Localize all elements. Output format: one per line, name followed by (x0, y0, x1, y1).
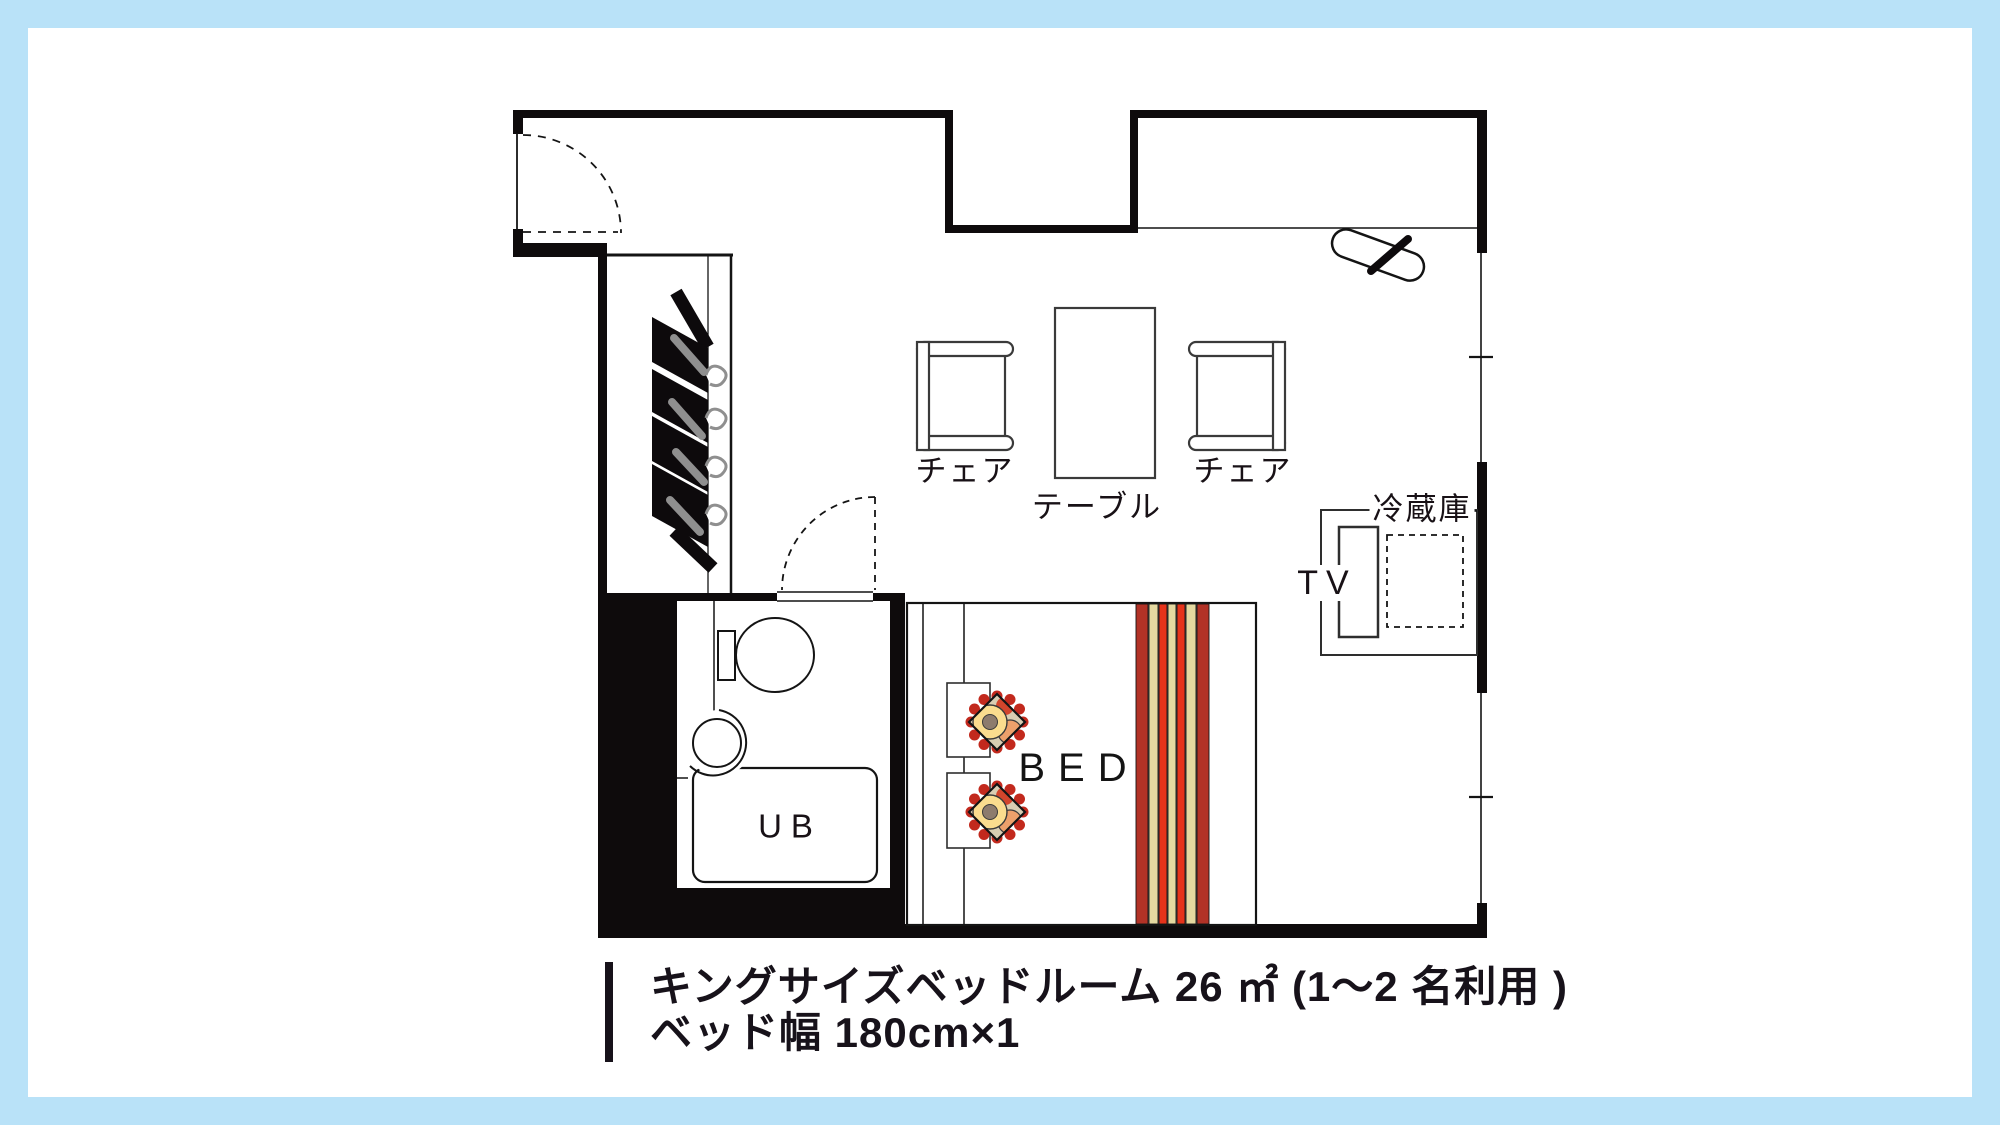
chair-left-back (917, 342, 929, 450)
right-wall-middle (1477, 462, 1487, 693)
hanger-hooks (706, 366, 726, 524)
chair-right-armrest-bottom (1189, 436, 1285, 450)
hanger-hook-icon (706, 505, 726, 524)
chair-left-seat (927, 355, 1005, 437)
bathtub-label: UB (758, 810, 822, 843)
caption: キングサイズベッドルーム 26 ㎡ (1〜2 名利用 ) ベッド幅 180cm×… (650, 964, 1568, 1056)
entry-bottom-wall (513, 243, 607, 257)
fridge-label: 冷蔵庫 (1370, 493, 1475, 526)
left-wall-upper-nub (513, 110, 523, 134)
luggage-rack-frame (1328, 225, 1428, 284)
hanger-hook-icon (706, 409, 726, 428)
chair-left-armrest-top (917, 342, 1013, 356)
hanger-hook-icon (706, 457, 726, 476)
table-label: テーブル (1032, 492, 1162, 523)
right-wall-upper (1477, 110, 1487, 253)
bed-runner (1136, 604, 1209, 924)
bed-runner-stripe (1177, 604, 1185, 924)
top-wall-right (1138, 110, 1487, 118)
notch-right-wall (1130, 110, 1138, 233)
chair-left-label: チェア (916, 456, 1015, 487)
chair-right-label: チェア (1194, 456, 1293, 487)
caption-line-1: キングサイズベッドルーム 26 ㎡ (1〜2 名利用 ) (650, 964, 1568, 1010)
toilet-tank (718, 631, 735, 680)
screenshot-root: { "page": { "background": "#b9e2f8", "ca… (0, 0, 2000, 1125)
cushion-core (983, 805, 998, 820)
bed-runner-stripe (1149, 604, 1158, 924)
chair-right (1189, 342, 1285, 450)
bed-runner-stripe (1159, 604, 1167, 924)
luggage-rack (1328, 225, 1428, 284)
bed-label: BED (1018, 748, 1139, 788)
fridge-outline (1387, 535, 1463, 627)
notch-left-wall (945, 110, 953, 233)
bed-runner-stripe (1186, 604, 1196, 924)
toilet-bowl (736, 618, 814, 692)
chair-right-armrest-top (1189, 342, 1285, 356)
caption-line-2: ベッド幅 180cm×1 (650, 1010, 1568, 1056)
entry-door-swing (523, 135, 621, 233)
chair-left-armrest-bottom (917, 436, 1013, 450)
caption-bar (605, 962, 613, 1062)
tv-label: TV (1294, 565, 1359, 601)
floor-plan-svg (0, 0, 2000, 1125)
bathroom-door-swing (782, 497, 875, 590)
bathroom-door-opening (777, 588, 873, 602)
bed-runner-stripe (1168, 604, 1176, 924)
top-wall-left (513, 110, 953, 118)
chair-right-seat (1197, 355, 1275, 437)
notch-bottom-wall (945, 225, 1138, 233)
closet-left-wall (598, 243, 607, 593)
entry-door-arc (523, 135, 621, 233)
cushion-core (983, 715, 998, 730)
dining-set (917, 308, 1285, 478)
closet-contents (652, 292, 726, 568)
sink-basin (693, 719, 741, 767)
chair-left (917, 342, 1013, 450)
bathroom-door-arc (782, 497, 875, 590)
bed-runner-stripe (1197, 604, 1209, 924)
hanger-hook-icon (706, 366, 726, 385)
chair-right-back (1273, 342, 1285, 450)
table (1055, 308, 1155, 478)
